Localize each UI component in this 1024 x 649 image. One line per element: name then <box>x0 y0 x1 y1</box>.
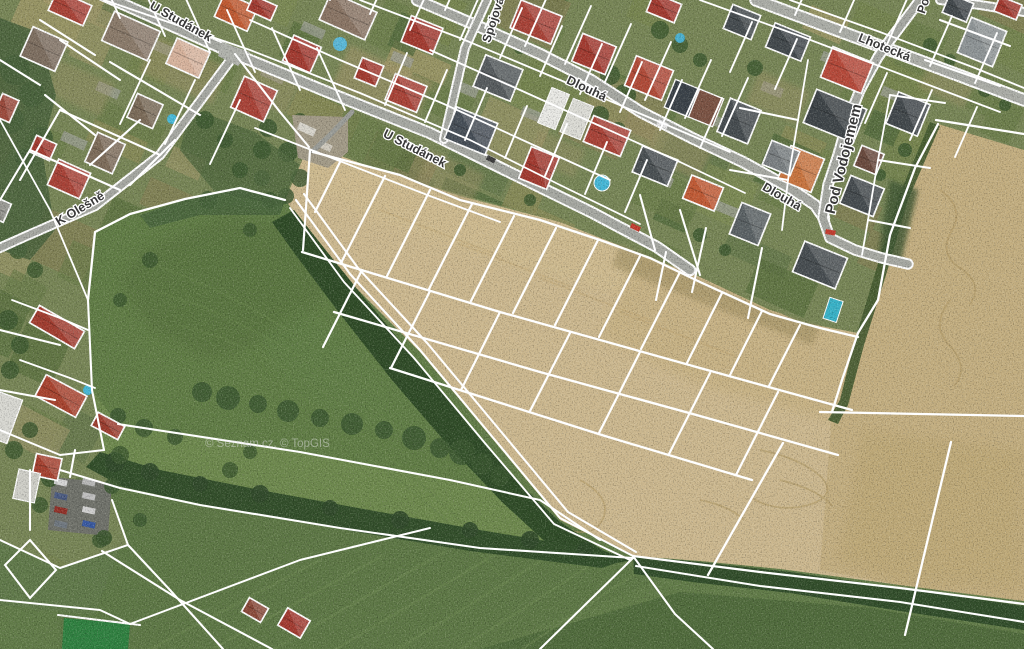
svg-text:© Seznam.cz, © TopGIS: © Seznam.cz, © TopGIS <box>205 438 330 450</box>
